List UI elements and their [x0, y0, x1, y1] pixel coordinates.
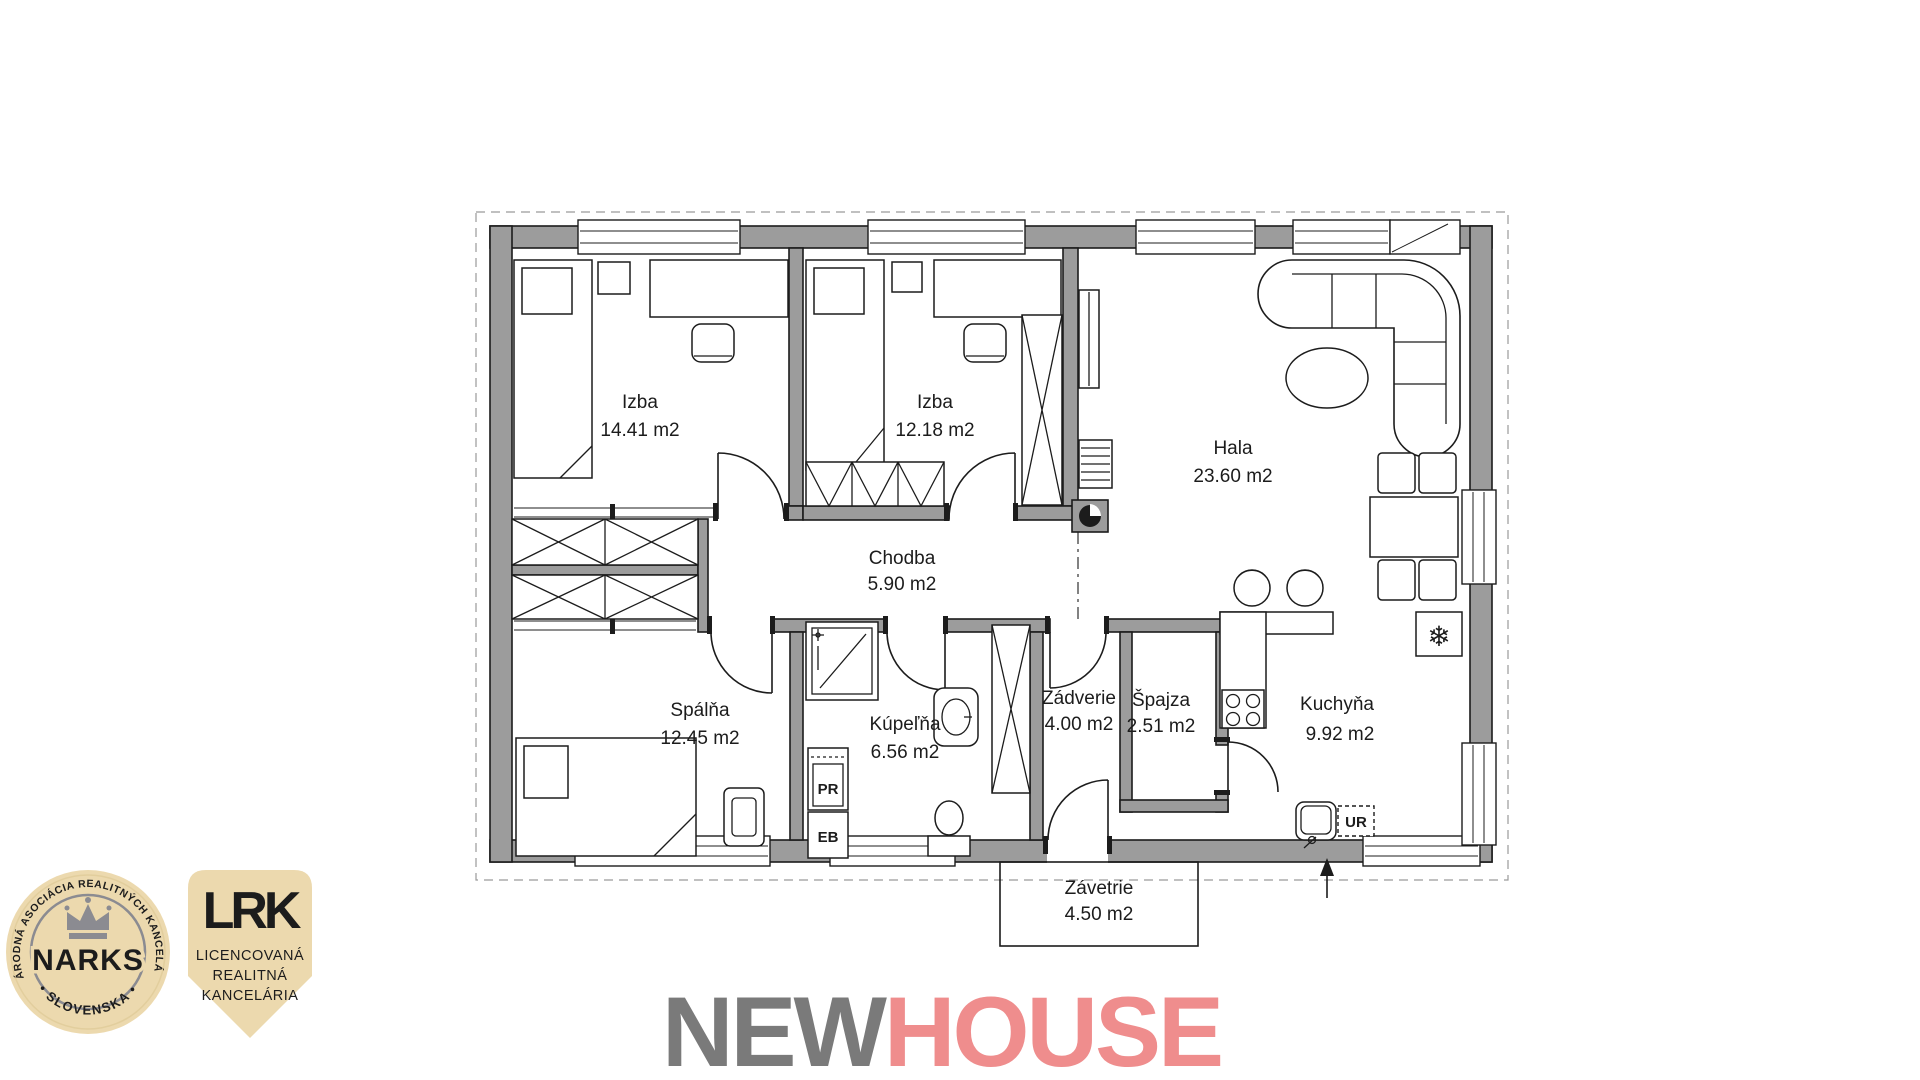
stools	[1234, 570, 1323, 606]
fridge: ❄	[1416, 612, 1462, 656]
lrk-line1: LICENCOVANÁ	[196, 947, 304, 964]
lrk-line2: REALITNÁ	[213, 967, 288, 984]
door-izba2	[944, 453, 1018, 521]
washbasin	[934, 688, 978, 746]
label-izba2-area: 12.18 m2	[895, 420, 974, 441]
door-izba1	[713, 453, 789, 521]
tall-cabinet	[992, 625, 1030, 793]
lrk-logo: LRK LICENCOVANÁ REALITNÁ KANCELÁRIA	[180, 864, 320, 1044]
izba1-furniture	[514, 260, 788, 478]
label-kupelna-name: Kúpeľňa	[869, 714, 940, 735]
chimney	[1072, 500, 1108, 532]
washing-machine-label: PR	[818, 781, 839, 798]
label-kuchyna-name: Kuchyňa	[1300, 694, 1374, 715]
label-spajza-area: 2.51 m2	[1127, 716, 1196, 737]
radiator	[1079, 440, 1112, 488]
window-right-kuchyna	[1462, 743, 1496, 845]
brand-new: NEW	[662, 976, 884, 1080]
lrk-initials: LRK	[203, 882, 302, 940]
terrace-door	[1390, 220, 1460, 254]
label-zadverie-area: 4.00 m2	[1045, 714, 1114, 735]
label-spalna-area: 12.45 m2	[660, 728, 739, 749]
label-spajza-name: Špajza	[1132, 689, 1191, 711]
entrance-arrow	[1320, 858, 1334, 898]
label-chodba-area: 5.90 m2	[868, 574, 937, 595]
dishwasher: UR	[1338, 806, 1374, 836]
narks-name: NARKS	[32, 944, 144, 977]
label-zadverie-name: Zádverie	[1042, 688, 1116, 709]
label-zavetrie-name: Závetrie	[1065, 878, 1134, 899]
label-izba2-name: Izba	[917, 392, 953, 413]
entrance-door	[1043, 780, 1112, 864]
label-izba1-area: 14.41 m2	[600, 420, 679, 441]
door-kupelna	[883, 616, 948, 690]
label-izba1-name: Izba	[622, 392, 658, 413]
label-kupelna-area: 6.56 m2	[871, 742, 940, 763]
boiler-label: EB	[818, 829, 839, 846]
window-top-hala-2	[1293, 220, 1390, 254]
brand-house: HOUSE	[884, 976, 1221, 1080]
label-kuchyna-area: 9.92 m2	[1306, 724, 1375, 745]
window-top-izba2	[868, 220, 1025, 254]
window-top-izba1	[578, 220, 740, 254]
lrk-line3: KANCELÁRIA	[202, 987, 299, 1004]
label-spalna-name: Spálňa	[670, 700, 730, 721]
dishwasher-label: UR	[1345, 814, 1367, 831]
izba2-furniture	[806, 260, 1062, 506]
label-zavetrie-area: 4.50 m2	[1065, 904, 1134, 925]
kupelna-fixtures: PR EB	[806, 622, 1030, 858]
fridge-icon: ❄	[1427, 621, 1450, 652]
newhouse-logo: NEWHOUSE	[662, 982, 1221, 1080]
label-chodba-name: Chodba	[869, 548, 936, 569]
door-zadverie	[1045, 616, 1109, 688]
toilet	[928, 801, 970, 856]
coffee-table	[1286, 348, 1368, 408]
narks-logo: NARKS NÁRODNÁ ASOCIÁCIA REALITNÝCH KANCE…	[2, 864, 174, 1040]
door-spalna	[707, 616, 775, 693]
window-right-dining	[1462, 490, 1496, 584]
label-hala-name: Hala	[1213, 438, 1253, 459]
window-top-hala-1	[1136, 220, 1255, 254]
label-hala-area: 23.60 m2	[1193, 466, 1272, 487]
stove	[1222, 690, 1264, 728]
shower	[806, 622, 878, 700]
dining-set	[1370, 453, 1458, 600]
spalna-furniture	[516, 738, 764, 856]
washing-machine: PR	[808, 748, 848, 810]
hala-furniture	[1079, 260, 1460, 606]
boiler: EB	[808, 812, 848, 858]
